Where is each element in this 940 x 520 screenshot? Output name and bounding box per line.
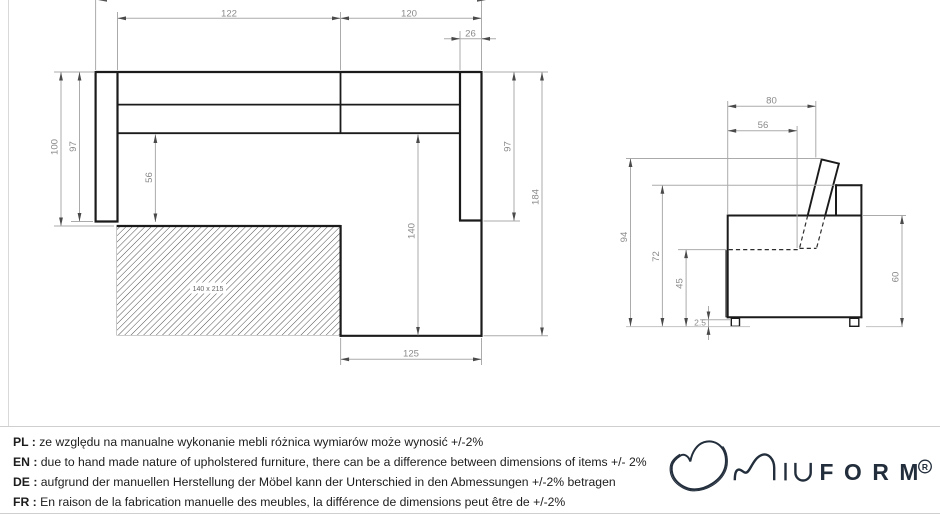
svg-text:97: 97 — [503, 141, 514, 152]
svg-text:45: 45 — [675, 278, 686, 289]
svg-text:56: 56 — [144, 172, 155, 183]
svg-text:2.5: 2.5 — [694, 318, 706, 328]
svg-text:100: 100 — [50, 139, 61, 155]
svg-text:184: 184 — [531, 188, 542, 205]
svg-text:72: 72 — [651, 251, 662, 262]
svg-text:26: 26 — [465, 29, 476, 40]
svg-text:R: R — [922, 462, 928, 472]
svg-text:60: 60 — [891, 272, 902, 283]
svg-text:140 x 215: 140 x 215 — [193, 286, 224, 293]
svg-text:120: 120 — [401, 9, 417, 20]
svg-text:125: 125 — [403, 349, 419, 360]
svg-text:97: 97 — [68, 141, 79, 152]
svg-text:56: 56 — [758, 120, 769, 131]
svg-text:80: 80 — [766, 96, 777, 107]
svg-text:94: 94 — [619, 231, 630, 242]
svg-text:FORM: FORM — [820, 459, 930, 485]
svg-text:140: 140 — [407, 223, 418, 239]
svg-text:122: 122 — [221, 9, 237, 20]
